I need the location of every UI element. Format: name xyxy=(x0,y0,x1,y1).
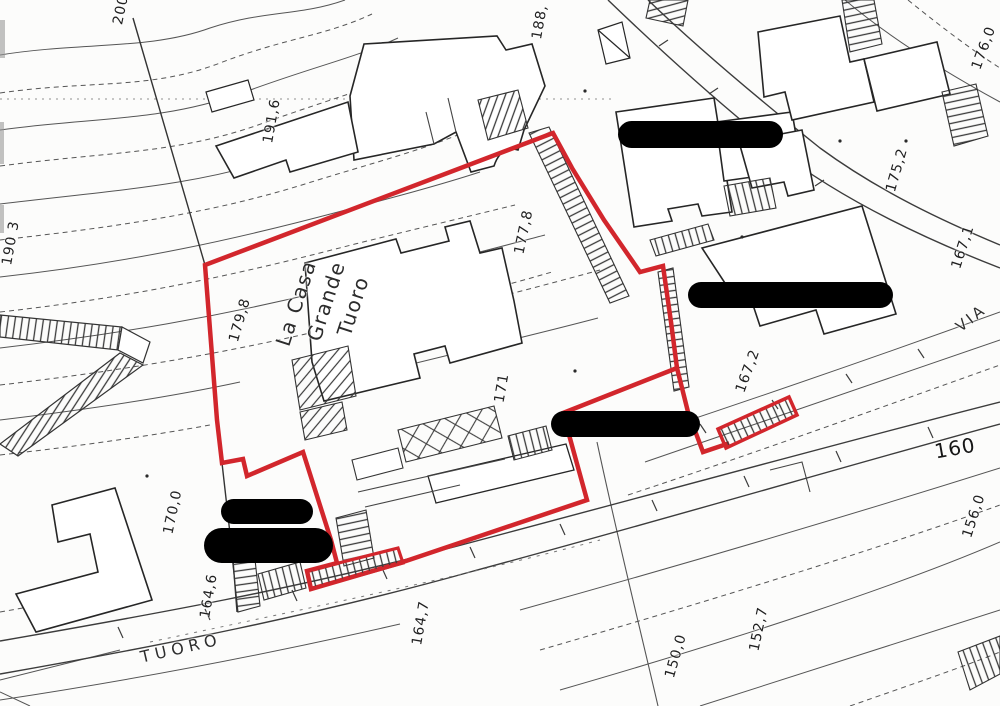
building-under-bar1 xyxy=(616,98,732,227)
building-top-center-annex xyxy=(216,102,358,178)
xbrace-strip xyxy=(398,406,502,462)
ramp-stairs-left xyxy=(0,315,150,456)
redaction-bar-3 xyxy=(551,411,700,437)
map-svg xyxy=(0,0,1000,706)
strip-plain xyxy=(352,448,403,480)
boundary-flag xyxy=(718,397,797,448)
stairs-top-edge xyxy=(646,0,688,26)
stairs-casa-a xyxy=(292,346,356,410)
redaction-bar-2 xyxy=(688,282,893,308)
stairs-long-diagonal xyxy=(529,127,629,303)
stairs-corner-bottomright xyxy=(958,636,1000,690)
building-lower-center xyxy=(428,444,574,503)
building-right-middle xyxy=(702,206,896,334)
building-topright-b xyxy=(864,42,950,111)
map-canvas: 200 188, 191,6 190 3 179,8 177,8 171 175… xyxy=(0,0,1000,706)
building-bottom-left xyxy=(16,488,152,632)
stairs-under-bar1 xyxy=(724,178,776,216)
redaction-bar-1 xyxy=(618,121,783,148)
stairs-topright-b xyxy=(942,84,988,146)
stairs-topright-a xyxy=(842,0,882,52)
building-small-step xyxy=(206,80,254,112)
stairs-bottomleft-b xyxy=(258,562,306,600)
redaction-bar-5 xyxy=(204,528,333,563)
building-parallelogram-slash xyxy=(598,22,630,64)
redaction-bar-4 xyxy=(221,499,313,524)
